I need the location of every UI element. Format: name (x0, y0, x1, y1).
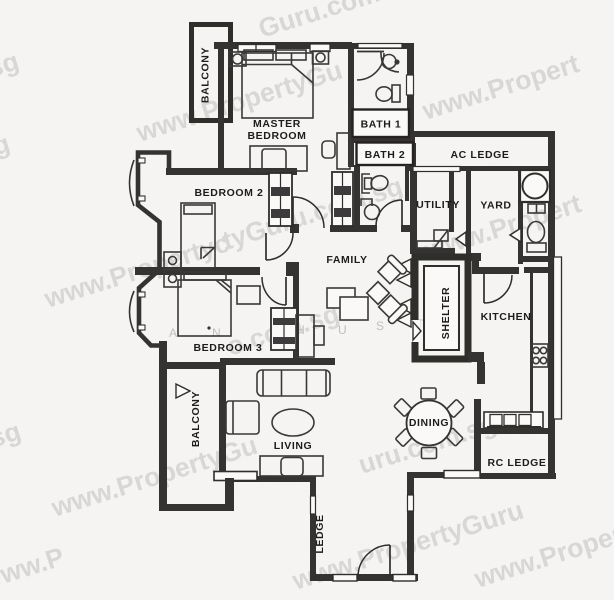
svg-text:BATH 1: BATH 1 (361, 119, 402, 131)
svg-text:AC LEDGE: AC LEDGE (450, 149, 509, 161)
svg-text:U: U (338, 323, 347, 337)
svg-text:LIVING: LIVING (274, 440, 313, 452)
svg-text:KITCHEN: KITCHEN (481, 311, 532, 323)
svg-text:BEDROOM 2: BEDROOM 2 (195, 187, 264, 199)
svg-text:RC LEDGE: RC LEDGE (487, 457, 546, 469)
svg-text:SHELTER: SHELTER (440, 287, 452, 339)
svg-text:N: N (212, 326, 221, 340)
svg-text:BALCONY: BALCONY (190, 391, 202, 447)
svg-text:A: A (169, 326, 177, 340)
svg-text:BEDROOM 3: BEDROOM 3 (194, 342, 263, 354)
svg-text:BEDROOM: BEDROOM (247, 130, 306, 142)
svg-text:FAMILY: FAMILY (326, 254, 367, 266)
svg-text:DINING: DINING (409, 417, 449, 429)
svg-text:LEDGE: LEDGE (314, 514, 326, 553)
svg-text:BALCONY: BALCONY (200, 47, 212, 103)
svg-text:S: S (376, 319, 384, 333)
svg-text:BATH 2: BATH 2 (365, 149, 406, 161)
svg-text:YARD: YARD (480, 200, 511, 212)
svg-text:MASTER: MASTER (253, 118, 301, 130)
svg-text:UTILITY: UTILITY (416, 199, 460, 211)
